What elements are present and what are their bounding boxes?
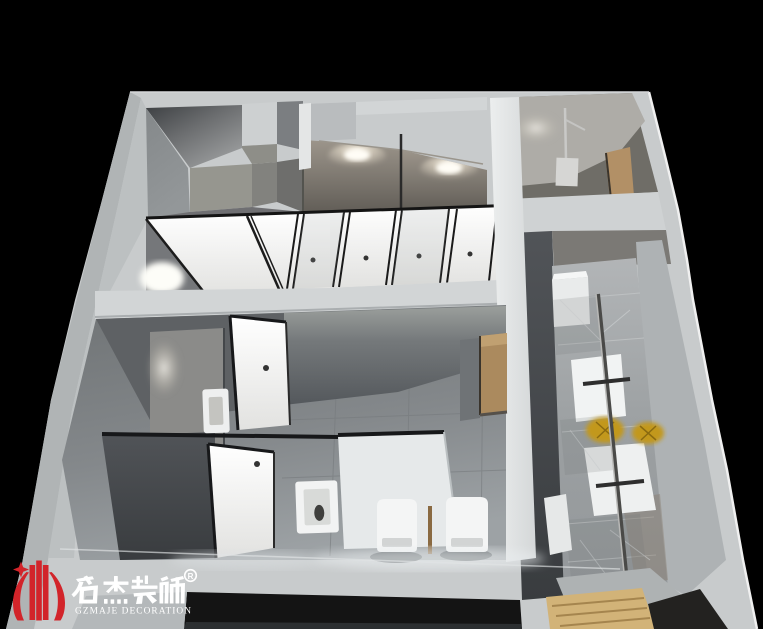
svg-text:GZMAJE DECORATION: GZMAJE DECORATION [75, 607, 192, 617]
svg-text:R: R [188, 572, 194, 581]
